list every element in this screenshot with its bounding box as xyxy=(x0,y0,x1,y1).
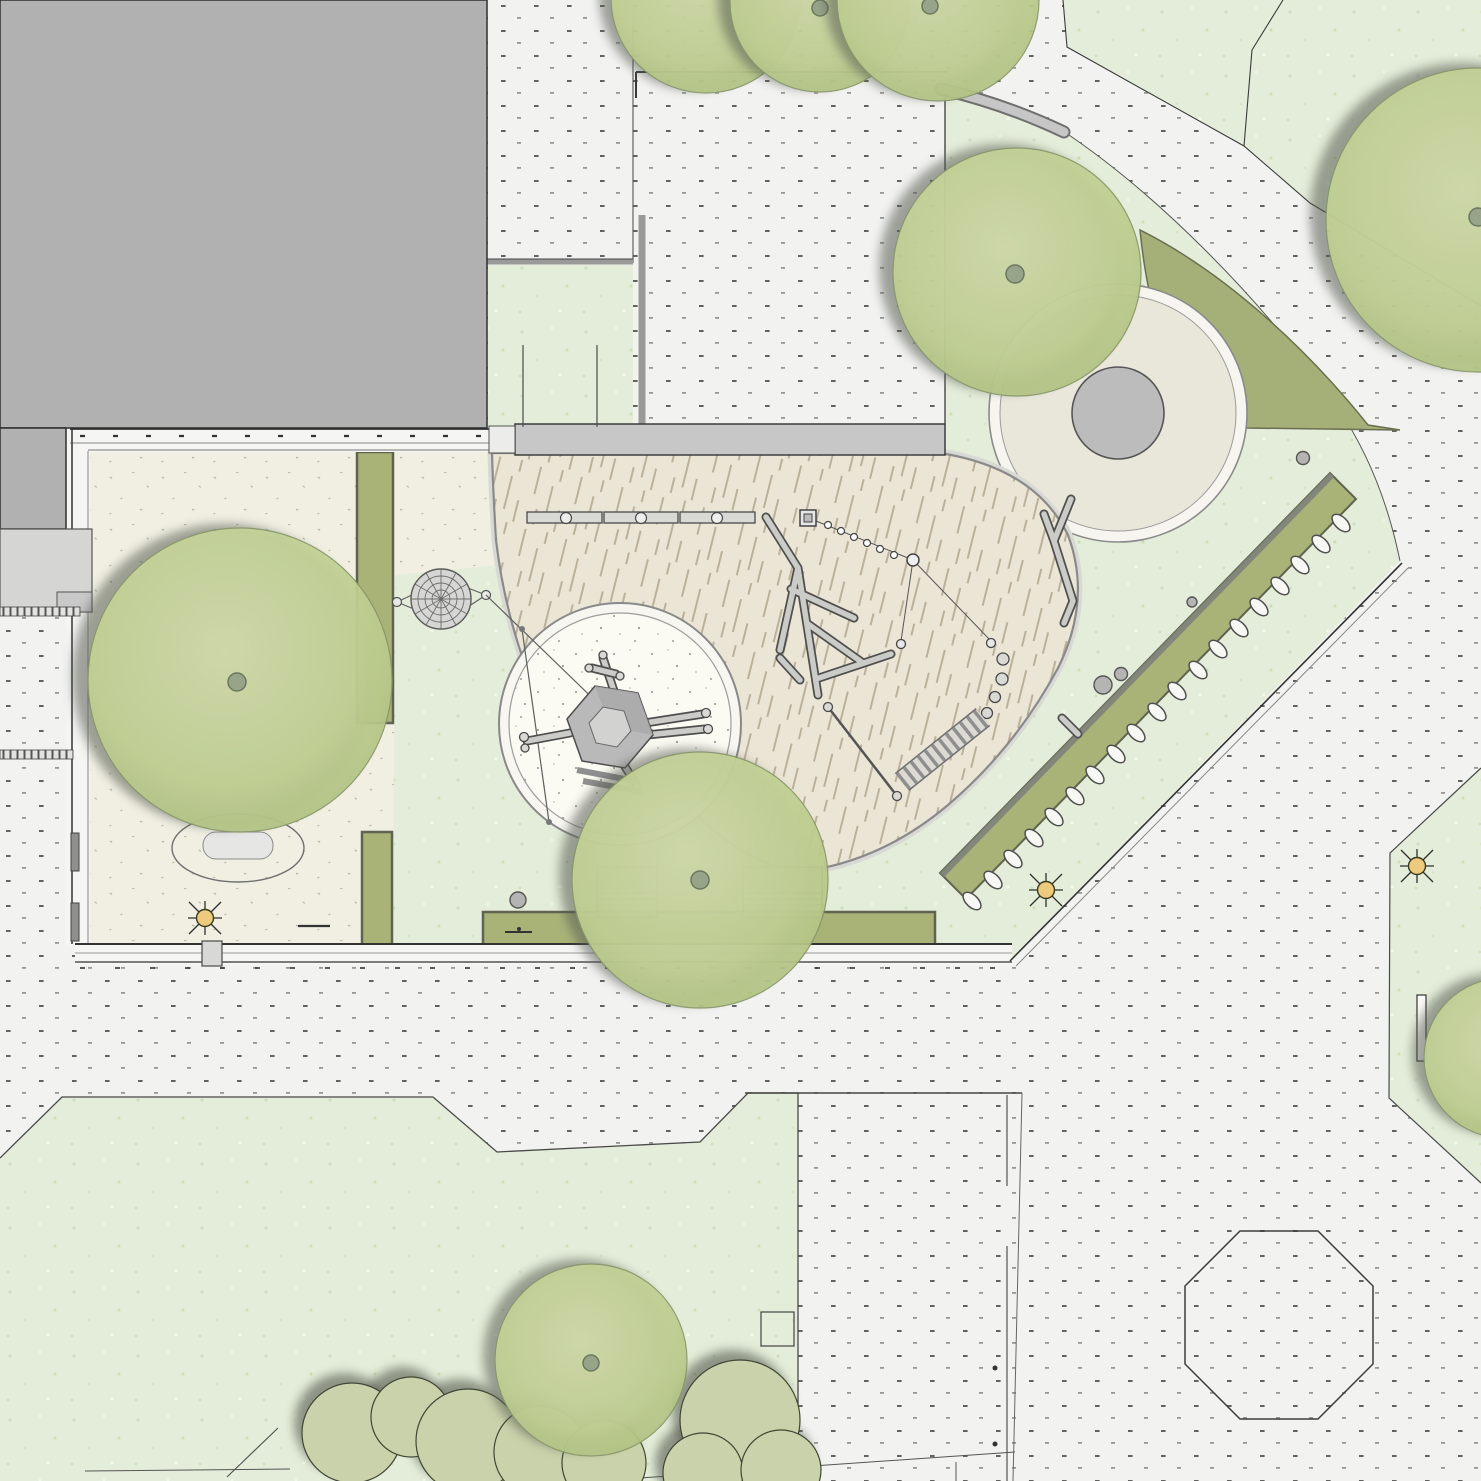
site-plan-canvas xyxy=(0,0,1481,1481)
sun-lamp-2 xyxy=(1029,873,1063,907)
fence-gate-post xyxy=(202,941,222,966)
site-plan xyxy=(0,0,1481,1481)
gate-west-2 xyxy=(71,903,79,941)
sun-lamp-3 xyxy=(1400,849,1434,883)
gate-west-1 xyxy=(71,833,79,871)
tree-top-right xyxy=(879,144,1141,396)
hedge-vertical-2 xyxy=(362,832,392,945)
wall-hatch-2 xyxy=(0,750,73,759)
tree-middle xyxy=(559,748,828,1008)
tree-large-left xyxy=(72,524,392,832)
balance-beams xyxy=(527,512,755,524)
sun-lamp-1 xyxy=(188,901,222,935)
bench-wall xyxy=(515,424,945,455)
wall-hatch-1 xyxy=(0,607,80,616)
lawn-strip-courtyard xyxy=(488,265,633,428)
plaza-center-disc xyxy=(1072,367,1164,459)
